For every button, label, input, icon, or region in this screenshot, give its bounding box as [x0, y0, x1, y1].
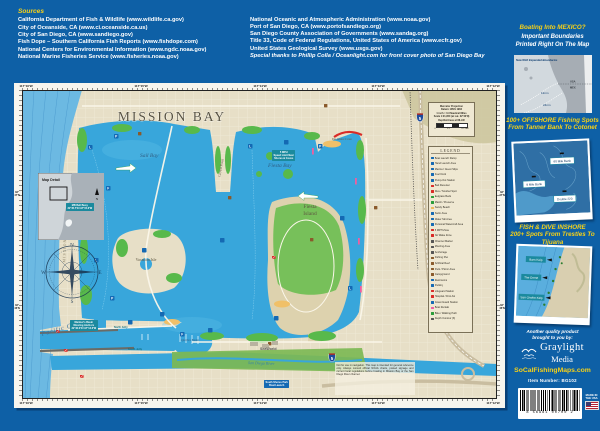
brand-name-bottom: Media — [540, 355, 584, 364]
legend-title: LEGEND — [431, 149, 470, 155]
latitude-label: 32°46'N — [13, 304, 21, 310]
longitude-label: 117°12'W — [486, 401, 499, 405]
longitude-label: 117°16'W — [19, 84, 32, 88]
latitude-label: 32°46'N — [498, 304, 506, 310]
source-credit-line: Special thanks to Phillip Colla / Oceanl… — [250, 53, 502, 60]
legend-swatch — [431, 229, 434, 232]
callout-bell-buoy: MB Bell Buoy32°45.7'N 117°15.6'W — [66, 203, 94, 211]
disclaimer-text: Not for use in navigation. This map is i… — [335, 362, 415, 395]
svg-text:L: L — [349, 287, 351, 291]
source-credit-line: National Marine Fisheries Service (www.f… — [18, 54, 248, 61]
legend-swatch — [431, 307, 434, 310]
legend-swatch — [431, 295, 434, 298]
legend-label: Artificial Reef — [435, 262, 450, 265]
legend-swatch — [431, 179, 434, 182]
sources-section: Sources California Department of Fish & … — [0, 0, 505, 80]
projection-info-box: Mercator ProjectionDatum: WGS 19841 inch… — [428, 102, 475, 137]
legend-swatch — [431, 173, 434, 176]
legend-label: Pump-Out Station — [435, 179, 455, 182]
legend-label: Coast Guard Station — [435, 301, 458, 304]
source-credit-line: City of San Diego, CA (www.sandiego.gov) — [18, 32, 248, 39]
tick-marks-top — [22, 88, 497, 90]
gull-icon — [521, 346, 537, 360]
map-sheet: LPF ALP FLP L — [14, 83, 505, 408]
made-in-usa-label: MADE IN THE USA — [584, 394, 599, 400]
svg-text:Barn Kelp: Barn Kelp — [529, 258, 543, 262]
legend-swatch — [431, 185, 434, 188]
legend-swatch — [431, 279, 434, 282]
legend-label: Eelgrass Beds — [435, 195, 451, 198]
fiesta-island — [267, 197, 350, 342]
inshore-map-thumbnail: Barn Kelp The Dome San Onofre Kelp — [514, 244, 593, 326]
legend-swatch — [431, 273, 434, 276]
legend-swatch — [431, 168, 434, 171]
legend-label: Fuel Dock — [435, 173, 446, 176]
brand-name-top: Graylight — [540, 343, 584, 354]
svg-text:L: L — [89, 146, 91, 150]
sources-heading: Sources — [18, 8, 248, 15]
barcode: 8 56981 00700 2 — [518, 388, 582, 419]
legend-swatch — [431, 290, 434, 293]
offshore-subtitle: From Tanner Bank To Cotonet — [505, 124, 600, 131]
map-legend: LEGEND Boat Launch Ramp Hand Launch Area… — [428, 146, 473, 333]
legend-label: Campground — [435, 273, 450, 276]
scale-bar-labels: 0 0.1 0.2 NM — [435, 128, 469, 130]
legend-swatch — [431, 212, 434, 215]
website-url: SoCalFishingMaps.com — [505, 367, 600, 374]
dana-basin — [134, 331, 154, 345]
brand-tagline-2: brought to you by: — [505, 335, 600, 341]
legend-label: No Wake Zone — [435, 234, 452, 237]
offshore-title: 100+ OFFSHORE Fishing Spots — [505, 117, 600, 124]
svg-text:N: N — [70, 243, 74, 249]
longitude-label: 117°13'W — [371, 401, 384, 405]
offshore-map-thumbnail: 9 Mile Bank 60 Mile Bank Double 220 — [511, 138, 592, 222]
barcode-bars — [520, 390, 580, 411]
source-credit-line: San Diego County Association of Governme… — [250, 31, 502, 38]
legend-label: Hand Launch Area — [435, 162, 456, 165]
svg-text:Fiesta: Fiesta — [303, 204, 317, 210]
latitude-label: 32°47'N — [13, 191, 21, 197]
svg-text:L: L — [249, 145, 251, 149]
legend-label: Bike / Walking Path — [435, 312, 457, 315]
island — [530, 77, 533, 80]
svg-text:E: E — [98, 271, 101, 276]
sidebar: Boating Into MEXICO? Important Boundarie… — [505, 0, 600, 431]
legend-label: Channel Marker — [435, 240, 453, 243]
legend-swatch — [431, 218, 434, 221]
legend-label: Restrooms — [435, 279, 447, 282]
mexico-boundary-map: Now With Expanded Boundaries 12nm 24nm U… — [514, 55, 592, 113]
legend-label: Water Ski Area — [435, 218, 452, 221]
svg-text:Vacation Isle: Vacation Isle — [136, 257, 157, 262]
barcode-digits: 8 56981 00700 2 — [520, 411, 580, 415]
legend-label: Park / Picnic Area — [435, 268, 455, 271]
legend-swatch — [431, 162, 434, 165]
legend-swatch — [431, 284, 434, 287]
graylight-media-logo: Graylight Media — [505, 343, 600, 363]
legend-label: Marina / Guest Slips — [435, 168, 458, 171]
legend-label: Parking — [435, 284, 444, 287]
tick-marks-right — [497, 90, 499, 399]
source-credit-line: Fish Dope – Southern California Fish Rep… — [18, 39, 248, 46]
svg-text:De Anza Cove: De Anza Cove — [332, 137, 352, 141]
svg-text:San Diego River: San Diego River — [248, 360, 275, 366]
svg-text:The Dome: The Dome — [524, 275, 538, 279]
legend-label: Boat Rentals — [435, 306, 450, 309]
source-credit-line: Title 33, Code of Federal Regulations, U… — [250, 38, 502, 45]
longitude-label: 117°14'W — [253, 84, 266, 88]
source-credit-line: National Oceanic and Atmospheric Adminis… — [250, 17, 502, 24]
callout-speed-limit: 5 MPHSpeed Limit NearShores & Coves — [272, 150, 295, 161]
south-jetty-label: South Jetty — [128, 348, 142, 351]
svg-text:Sail Bay: Sail Bay — [140, 153, 159, 159]
svg-text:San Onofre Kelp: San Onofre Kelp — [520, 295, 543, 300]
legend-swatch — [431, 190, 434, 193]
legend-label: Anchorage — [435, 251, 447, 254]
legend-label: Personal Watercraft Area — [435, 223, 463, 226]
scale-bar — [436, 123, 468, 127]
svg-text:24nm: 24nm — [543, 103, 551, 107]
svg-text:Fiesta Bay: Fiesta Bay — [267, 163, 292, 169]
source-credit-line: United States Geological Survey (www.usg… — [250, 46, 502, 53]
legend-swatch — [431, 157, 434, 160]
legend-swatch — [431, 318, 434, 321]
svg-text:12nm: 12nm — [541, 91, 549, 95]
svg-text:Quivira Basin: Quivira Basin — [181, 338, 199, 342]
legend-swatch — [431, 207, 434, 210]
svg-text:Island: Island — [303, 211, 317, 217]
legend-swatch — [431, 196, 434, 199]
map-title: MISSION BAY — [118, 109, 226, 124]
legend-label: Boat Launch Ramp — [435, 157, 457, 160]
projection-line: Scale 1:21,950 (at Lat. 32°46'N) — [431, 115, 472, 119]
legend-swatch — [431, 223, 434, 226]
brand-block: Another quality product brought to you b… — [505, 329, 600, 383]
legend-swatch — [431, 246, 434, 249]
svg-text:Double 220: Double 220 — [557, 197, 573, 202]
legend-label: 5 MPH Zone — [435, 229, 449, 232]
made-in-usa-block: MADE IN THE USA — [584, 394, 599, 410]
svg-text:Map Detail: Map Detail — [42, 178, 60, 182]
us-flag-icon — [585, 401, 599, 410]
legend-swatch — [431, 262, 434, 265]
source-credit-line: National Centers for Environmental Infor… — [18, 47, 248, 54]
source-credit-line: City of Oceanside, CA (www.ci.oceanside.… — [18, 25, 248, 32]
source-credit-line: California Department of Fish & Wildlife… — [18, 17, 248, 24]
source-credit-line: Port of San Diego, CA (www.portofsandieg… — [250, 24, 502, 31]
map-back-cover: Sources California Department of Fish & … — [0, 0, 600, 431]
island — [524, 67, 528, 71]
legend-swatch — [431, 268, 434, 271]
svg-text:S: S — [71, 300, 74, 304]
legend-label: Mooring Area — [435, 245, 450, 248]
north-jetty-label: North Jetty — [114, 326, 128, 329]
legend-item: Depth Contour (ft) — [431, 316, 470, 322]
projection-line: Depths/Areas at MLLW — [431, 119, 472, 123]
longitude-label: 117°15'W — [134, 84, 147, 88]
legend-label: Swim Area — [435, 212, 447, 215]
inshore-title: FISH & DIVE INSHORE — [505, 224, 600, 231]
legend-label: Bait Receiver — [435, 184, 450, 187]
legend-swatch — [431, 240, 434, 243]
svg-text:MEX: MEX — [570, 86, 576, 90]
longitude-label: 117°15'W — [134, 401, 147, 405]
svg-text:USA: USA — [570, 80, 576, 84]
legend-label: Marsh / Preserve — [435, 201, 454, 204]
longitude-label: 117°13'W — [371, 84, 384, 88]
legend-swatch — [431, 257, 434, 260]
svg-text:60 Mile Bank: 60 Mile Bank — [553, 159, 571, 164]
tick-marks-left — [19, 90, 21, 399]
legend-label: Depth Contour (ft) — [435, 317, 455, 320]
mexico-subtitle-1: Important Boundaries — [505, 34, 600, 41]
legend-label: Hospital / First Aid — [435, 295, 456, 298]
legend-swatch — [431, 234, 434, 237]
svg-text:F: F — [107, 187, 109, 191]
mexico-subtitle-2: Printed Right On The Map — [505, 42, 600, 49]
legend-label: Sandy Beach — [435, 206, 450, 209]
svg-text:Now With Expanded Boundaries: Now With Expanded Boundaries — [516, 58, 558, 62]
legend-label: Lifeguard Station — [435, 290, 454, 293]
legend-swatch — [431, 251, 434, 254]
svg-text:W: W — [41, 271, 46, 276]
svg-text:F: F — [181, 333, 183, 337]
sources-column-right: National Oceanic and Atmospheric Adminis… — [250, 8, 502, 60]
legend-swatch — [431, 312, 434, 315]
legend-swatch — [431, 201, 434, 204]
legend-label: Dive / Snorkel Spot — [435, 190, 457, 193]
item-number: Item Number: BG102 — [505, 378, 600, 383]
longitude-label: 117°16'W — [19, 401, 32, 405]
svg-text:9 Mile Bank: 9 Mile Bank — [526, 182, 542, 187]
latitude-label: 32°47'N — [498, 191, 506, 197]
callout-south-shores: South Shores ParkBoat Launch — [264, 380, 289, 388]
mexico-title: Boating Into MEXICO? — [505, 24, 600, 31]
longitude-label: 117°12'W — [486, 84, 499, 88]
compass-rose: N E S W — [40, 240, 104, 304]
longitude-label: 117°14'W — [253, 401, 266, 405]
legend-swatch — [431, 301, 434, 304]
sources-column-left: Sources California Department of Fish & … — [18, 8, 248, 61]
legend-label: Fishing Pier — [435, 256, 448, 259]
callout-mariners-basin: Mariner's BasinMooring Anchors32°46.0'N … — [70, 320, 98, 331]
svg-text:SeaWorld: SeaWorld — [260, 347, 277, 351]
